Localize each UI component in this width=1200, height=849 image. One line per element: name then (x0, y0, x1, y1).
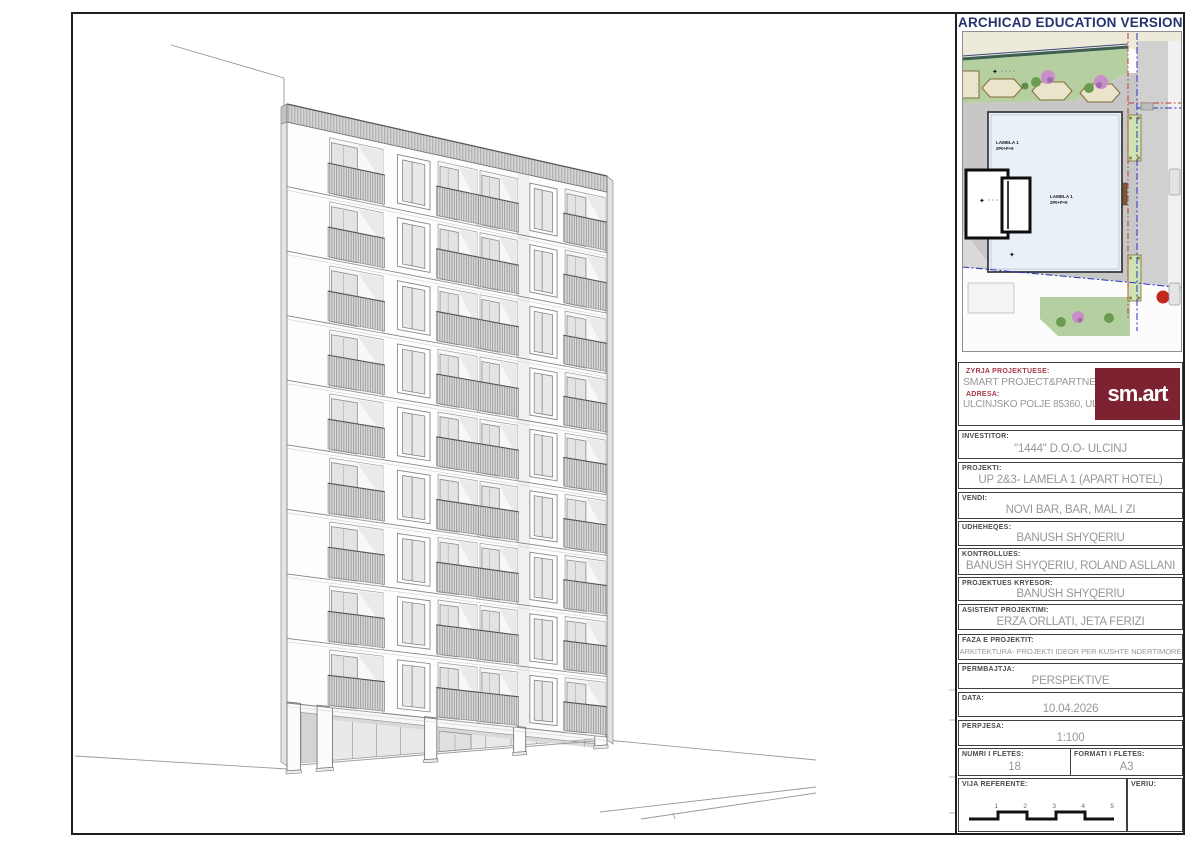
field-value: 1:100 (959, 731, 1182, 745)
field-label: DATA: (959, 693, 1182, 703)
field-value: UP 2&3- LAMELA 1 (APART HOTEL) (959, 473, 1182, 488)
siteplan-neighbor-building (968, 283, 1014, 313)
field-box-9: DATA:10.04.2026 (958, 692, 1183, 717)
field-value: BANUSH SHYQERIU (959, 588, 1182, 601)
archicad-watermark: ARCHICAD EDUCATION VERSION (958, 15, 1182, 31)
reference-line-label: VIJA REFERENTE: (959, 779, 1126, 789)
reference-line-scalebar: 1 2 3 4 5 (965, 795, 1121, 829)
siteplan-car (1169, 169, 1180, 195)
sheet-number-label: NUMRI I FLETES: (959, 749, 1070, 759)
office-label: ZYRJA PROJEKTUESE: (963, 366, 1094, 376)
svg-text:✦: ✦ (1009, 251, 1015, 259)
svg-text:✦: ✦ (979, 197, 985, 205)
field-box-8: PERMBAJTJA:PERSPEKTIVE (958, 663, 1183, 689)
title-block-divider (955, 12, 957, 835)
field-label: INVESTITOR: (959, 431, 1182, 441)
svg-text:✦: ✦ (992, 68, 998, 76)
field-box-7: FAZA E PROJEKTIT:ARKITEKTURA- PROJEKTI I… (958, 634, 1183, 660)
sheet-format-value: A3 (1071, 759, 1182, 775)
field-box-1: PROJEKTI:UP 2&3- LAMELA 1 (APART HOTEL) (958, 462, 1183, 489)
siteplan-green-patch (1040, 297, 1130, 336)
sheet-format-box: FORMATI I FLETES: A3 (1070, 748, 1183, 776)
field-box-10: PERPJESA:1:100 (958, 720, 1183, 746)
field-label: PERPJESA: (959, 721, 1182, 731)
svg-text:4: 4 (1081, 803, 1085, 810)
field-value: BANUSH SHYQERIU, ROLAND ASLLANI (959, 559, 1182, 574)
field-label: UDHEHEQES: (959, 522, 1182, 532)
svg-text:LAMELA 1: LAMELA 1 (1050, 194, 1073, 199)
field-value: BANUSH SHYQERIU (959, 532, 1182, 545)
sheet-format-label: FORMATI I FLETES: (1071, 749, 1182, 759)
field-label: PERMBAJTJA: (959, 664, 1182, 674)
smart-logo-text: sm.art (1107, 381, 1167, 407)
svg-text:2P0+P+9: 2P0+P+9 (996, 146, 1014, 151)
field-label: PROJEKTUES KRYESOR: (959, 578, 1182, 588)
sheet-number-box: NUMRI I FLETES: 18 (958, 748, 1071, 776)
layout-sheet: ARCHICAD EDUCATION VERSION (0, 0, 1200, 849)
smart-logo: sm.art (1095, 368, 1180, 420)
field-box-6: ASISTENT PROJEKTIMI:ERZA ORLLATI, JETA F… (958, 604, 1183, 630)
office-value: SMART PROJECT&PARTNERS (963, 376, 1094, 388)
perspective-drawing (73, 14, 955, 833)
title-block-office: ZYRJA PROJEKTUESE: SMART PROJECT&PARTNER… (958, 362, 1183, 426)
address-value: ULCINJSKO POLJE 85360, ULCINJ (963, 399, 1094, 411)
north-box: VERIU: (1127, 778, 1183, 832)
field-box-3: UDHEHEQES:BANUSH SHYQERIU (958, 521, 1183, 546)
siteplan-car (1141, 103, 1153, 110)
north-label: VERIU: (1128, 779, 1182, 789)
siteplan-stair-core (966, 170, 1030, 238)
svg-text:2P0+P+9: 2P0+P+9 (1050, 200, 1068, 205)
field-label: FAZA E PROJEKTIT: (959, 635, 1182, 645)
site-plan: ✦✦✦ LAMELA 1 2P0+P+9 LAMELA 1 2P0+P+9 (962, 31, 1182, 352)
siteplan-car (1169, 283, 1180, 305)
svg-text:LAMELA 1: LAMELA 1 (996, 140, 1019, 145)
field-box-5: PROJEKTUES KRYESOR:BANUSH SHYQERIU (958, 577, 1183, 601)
field-value: PERSPEKTIVE (959, 674, 1182, 688)
field-value: ERZA ORLLATI, JETA FERIZI (959, 615, 1182, 629)
svg-text:1: 1 (994, 803, 998, 810)
field-label: ASISTENT PROJEKTIMI: (959, 605, 1182, 615)
svg-text:3: 3 (1052, 803, 1056, 810)
field-label: PROJEKTI: (959, 463, 1182, 473)
field-value: "1444" D.O.O- ULCINJ (959, 441, 1182, 458)
field-label: VENDI: (959, 493, 1182, 503)
field-label: KONTROLLUES: (959, 549, 1182, 559)
reference-line-box: VIJA REFERENTE: 1 2 3 4 5 (958, 778, 1127, 832)
field-value: NOVI BAR, BAR, MAL I ZI (959, 503, 1182, 518)
svg-text:2: 2 (1023, 803, 1027, 810)
siteplan-red-marker (1157, 291, 1170, 304)
svg-text:5: 5 (1110, 803, 1114, 810)
field-value: ARKITEKTURA- PROJEKTI IDEOR PER KUSHTE N… (959, 645, 1182, 659)
sheet-number-value: 18 (959, 759, 1070, 775)
field-box-0: INVESTITOR:"1444" D.O.O- ULCINJ (958, 430, 1183, 459)
field-box-4: KONTROLLUES:BANUSH SHYQERIU, ROLAND ASLL… (958, 548, 1183, 575)
address-label: ADRESA: (963, 388, 1094, 399)
field-value: 10.04.2026 (959, 703, 1182, 716)
field-box-2: VENDI:NOVI BAR, BAR, MAL I ZI (958, 492, 1183, 519)
